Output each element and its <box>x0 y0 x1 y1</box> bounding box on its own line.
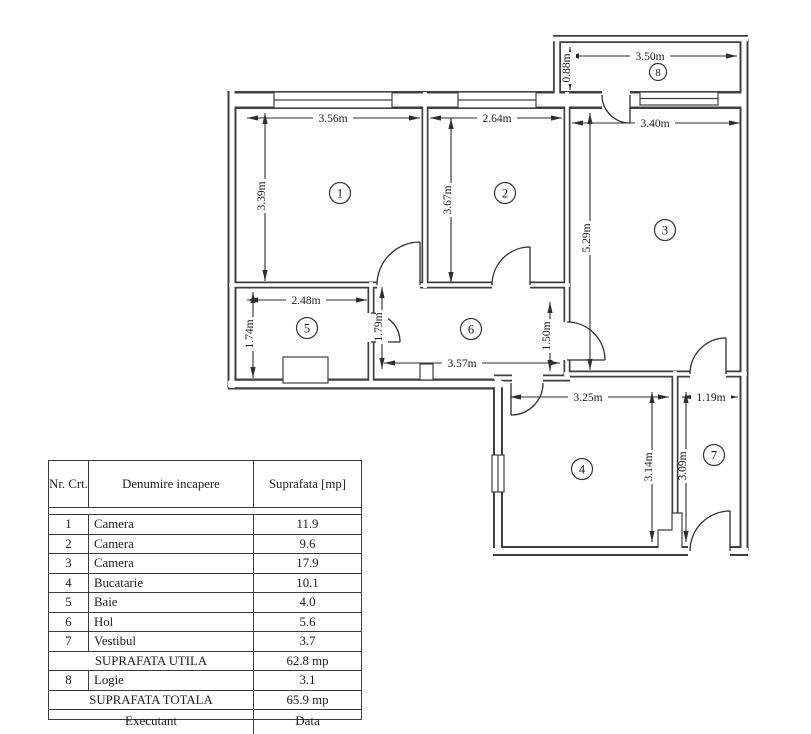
room-number-4: 4 <box>579 463 586 477</box>
room-number-6: 6 <box>468 323 474 337</box>
row-name: Camera <box>89 535 254 554</box>
row-name: Hol <box>89 613 254 632</box>
room-marker-1: 1 <box>330 183 351 204</box>
executant-label: Executant <box>49 710 254 734</box>
row-area: 4.0 <box>254 593 361 612</box>
area-table-header: Nr. Crt. Denumire incapere Suprafata [mp… <box>49 461 361 508</box>
suprafata-totala-row: SUPRAFATA TOTALA 65.9 mp <box>49 691 361 711</box>
header-suprafata: Suprafata [mp] <box>254 461 361 507</box>
door-room2 <box>492 247 530 285</box>
row-area: 3.7 <box>254 632 361 651</box>
table-row: 4 Bucatarie 10.1 <box>49 574 361 594</box>
dim-room2-width: 2.64m <box>482 113 511 125</box>
pier-room4-7 <box>658 513 682 548</box>
room-number-7: 7 <box>711 449 717 463</box>
area-table-body: 1 Camera 11.9 2 Camera 9.6 3 Camera 17.9… <box>49 514 361 734</box>
table-row: 1 Camera 11.9 <box>49 515 361 535</box>
table-row: 2 Camera 9.6 <box>49 535 361 555</box>
header-nr-crt: Nr. Crt. <box>49 461 89 507</box>
suprafata-utila-value: 62.8 mp <box>254 652 361 671</box>
row-nr: 4 <box>49 574 89 593</box>
row-nr: 5 <box>49 593 89 612</box>
header-denumire: Denumire incapere <box>89 461 254 507</box>
room-number-1: 1 <box>337 187 343 201</box>
dim-logie-width: 3.50m <box>635 51 664 63</box>
row-nr: 7 <box>49 632 89 651</box>
room-number-5: 5 <box>304 322 310 336</box>
table-row: 3 Camera 17.9 <box>49 554 361 574</box>
row-area: 5.6 <box>254 613 361 632</box>
table-row: 7 Vestibul 3.7 <box>49 632 361 652</box>
door-hol-room3 <box>567 322 605 360</box>
room-marker-3: 3 <box>655 220 676 241</box>
dim-hol-width: 3.57m <box>447 358 476 370</box>
row-area: 11.9 <box>254 515 361 534</box>
row-name: Logie <box>89 671 254 690</box>
room-marker-2: 2 <box>495 183 516 204</box>
room-marker-6: 6 <box>461 319 482 340</box>
dim-hol-depth: 1.79m <box>373 312 385 341</box>
suprafata-utila-row: SUPRAFATA UTILA 62.8 mp <box>49 652 361 672</box>
table-row: 6 Hol 5.6 <box>49 613 361 633</box>
dim-room4-depth: 3.14m <box>643 452 655 481</box>
door-room1 <box>377 242 420 285</box>
logie-door-gap <box>602 89 630 111</box>
door-room3-vestibul <box>690 338 726 374</box>
row-nr: 2 <box>49 535 89 554</box>
door-entrance <box>690 511 730 551</box>
scanned-floor-plan-page: { "floor_plan": { "room_numbers": { "r1"… <box>0 0 811 720</box>
row-area: 17.9 <box>254 554 361 573</box>
row-name: Bucatarie <box>89 574 254 593</box>
logie-row: 8 Logie 3.1 <box>49 671 361 691</box>
row-area: 9.6 <box>254 535 361 554</box>
room-number-2: 2 <box>502 187 508 201</box>
dim-room7-width: 1.19m <box>696 392 725 404</box>
table-row: 5 Baie 4.0 <box>49 593 361 613</box>
row-nr: 6 <box>49 613 89 632</box>
room-marker-8: 8 <box>650 64 667 81</box>
area-table: Nr. Crt. Denumire incapere Suprafata [mp… <box>48 460 362 720</box>
dim-room5-width: 2.48m <box>291 295 320 307</box>
row-name: Baie <box>89 593 254 612</box>
signature-row: Executant Data <box>49 710 361 734</box>
suprafata-totala-label: SUPRAFATA TOTALA <box>49 691 254 710</box>
dim-room3-width: 3.40m <box>640 118 669 130</box>
dim-room1-depth: 3.39m <box>256 181 268 210</box>
row-name: Vestibul <box>89 632 254 651</box>
room-number-8: 8 <box>655 67 661 79</box>
pier-hol <box>420 364 433 380</box>
pier-room5 <box>283 357 328 383</box>
dim-room5-depth: 1.74m <box>244 319 256 348</box>
dim-room1-width: 3.56m <box>318 113 347 125</box>
room-number-3: 3 <box>662 224 668 238</box>
row-nr: 3 <box>49 554 89 573</box>
row-nr: 8 <box>49 671 89 690</box>
row-nr: 1 <box>49 515 89 534</box>
dim-room4-width: 3.25m <box>573 392 602 404</box>
room-marker-4: 4 <box>572 459 593 480</box>
suprafata-totala-value: 65.9 mp <box>254 691 361 710</box>
room-marker-5: 5 <box>297 318 318 339</box>
row-area: 3.1 <box>254 671 361 690</box>
row-area: 10.1 <box>254 574 361 593</box>
row-name: Camera <box>89 515 254 534</box>
dim-room7-depth: 3.09m <box>677 451 689 480</box>
row-name: Camera <box>89 554 254 573</box>
data-label: Data <box>254 710 361 734</box>
dim-room3-depth: 5.29m <box>581 223 593 252</box>
dim-room2-depth: 3.67m <box>442 185 454 214</box>
dim-logie-depth: 0.88m <box>561 53 573 82</box>
suprafata-utila-label: SUPRAFATA UTILA <box>49 652 254 671</box>
door-room4 <box>511 383 543 415</box>
dim-opening-depth: 1.50m <box>541 321 553 350</box>
room-marker-7: 7 <box>704 445 725 466</box>
